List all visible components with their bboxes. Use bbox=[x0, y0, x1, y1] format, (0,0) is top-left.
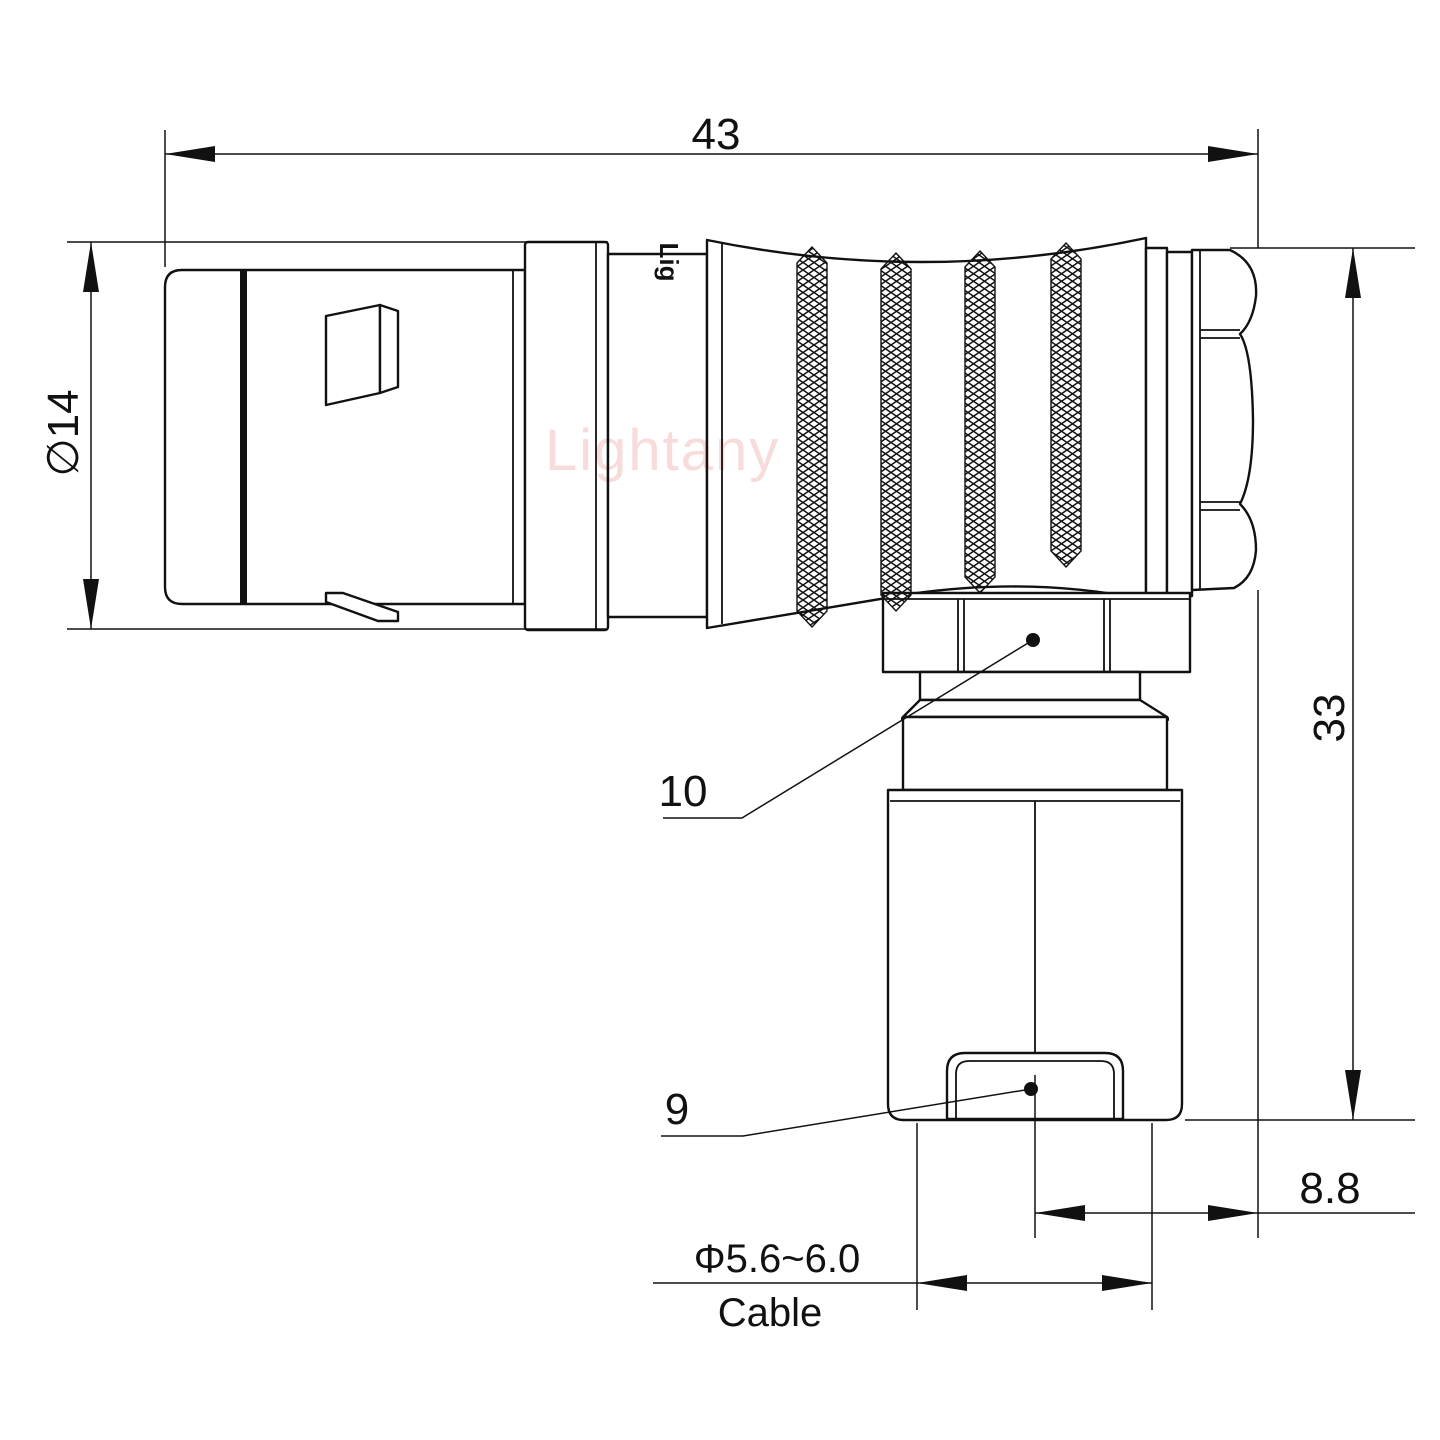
arrowhead-up-icon bbox=[1345, 248, 1361, 298]
arrowhead-down-icon bbox=[1345, 1070, 1361, 1120]
arrowhead-right-icon bbox=[1102, 1275, 1152, 1291]
arrowhead-right-icon bbox=[1208, 146, 1258, 162]
leader-dot-icon bbox=[1024, 1082, 1038, 1096]
hex-nut bbox=[883, 593, 1190, 672]
dim-label-cable: Cable bbox=[718, 1291, 823, 1335]
dim-value-back-offset: 8.8 bbox=[1299, 1164, 1360, 1213]
latch-block-side bbox=[380, 305, 398, 393]
knurl-band bbox=[1051, 243, 1081, 567]
connector-drawing: Lig Lightany 43 ∅14 33 8.8 bbox=[0, 0, 1440, 1440]
watermark-text: Lightany bbox=[545, 418, 780, 483]
dim-value-cable-range: Φ5.6~6.0 bbox=[694, 1237, 860, 1281]
arrowhead-left-icon bbox=[165, 146, 215, 162]
knurl-band bbox=[965, 251, 995, 593]
knurl-band bbox=[797, 247, 827, 627]
body-engraving-text: Lig bbox=[654, 243, 684, 282]
dim-value-front-diameter: ∅14 bbox=[39, 389, 88, 476]
leader-dot-icon bbox=[1026, 633, 1040, 647]
elbow-flare bbox=[903, 700, 1167, 717]
dim-cable-range: Φ5.6~6.0 Cable bbox=[653, 1123, 1152, 1335]
part-number-10: 10 bbox=[659, 767, 708, 816]
arrowhead-left-icon bbox=[1035, 1205, 1085, 1221]
dim-value-overall-length: 43 bbox=[692, 110, 741, 159]
knurl-band bbox=[881, 253, 911, 611]
sleeve-divider-bar bbox=[240, 271, 247, 603]
dim-value-overall-height: 33 bbox=[1305, 694, 1354, 743]
latch-block-front bbox=[326, 305, 380, 405]
part-number-9: 9 bbox=[665, 1085, 689, 1134]
arrowhead-right-icon bbox=[1208, 1205, 1258, 1221]
washer-band bbox=[1167, 252, 1192, 596]
arrowhead-up-icon bbox=[83, 242, 99, 292]
scalloped-nut bbox=[1192, 250, 1256, 590]
neck-band bbox=[1146, 248, 1167, 600]
mid-cylinder bbox=[903, 717, 1167, 790]
technical-drawing-canvas: Lig Lightany 43 ∅14 33 8.8 bbox=[0, 0, 1440, 1440]
arrowhead-down-icon bbox=[83, 579, 99, 629]
elbow-washer bbox=[920, 672, 1140, 700]
arrowhead-left-icon bbox=[917, 1275, 967, 1291]
